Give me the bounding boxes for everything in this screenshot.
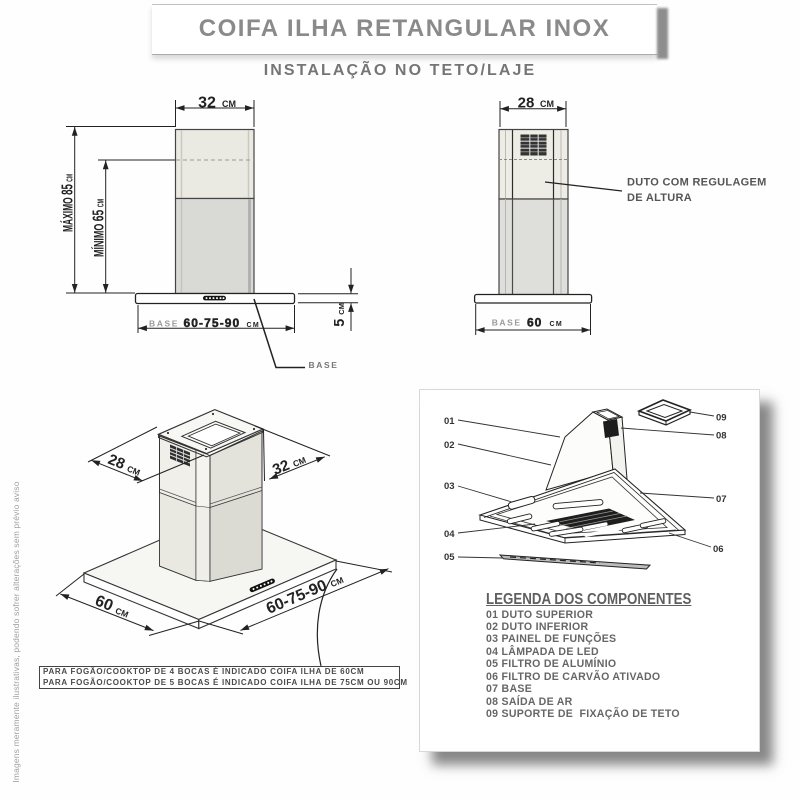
svg-text:02: 02 (444, 440, 455, 451)
svg-text:03: 03 (444, 481, 455, 492)
svg-text:08: 08 (716, 431, 727, 442)
svg-text:04: 04 (444, 529, 455, 540)
svg-text:09: 09 (716, 413, 727, 424)
svg-text:07: 07 (716, 494, 727, 505)
svg-text:06: 06 (713, 544, 724, 555)
svg-text:01: 01 (444, 416, 455, 427)
svg-text:05: 05 (444, 552, 455, 563)
